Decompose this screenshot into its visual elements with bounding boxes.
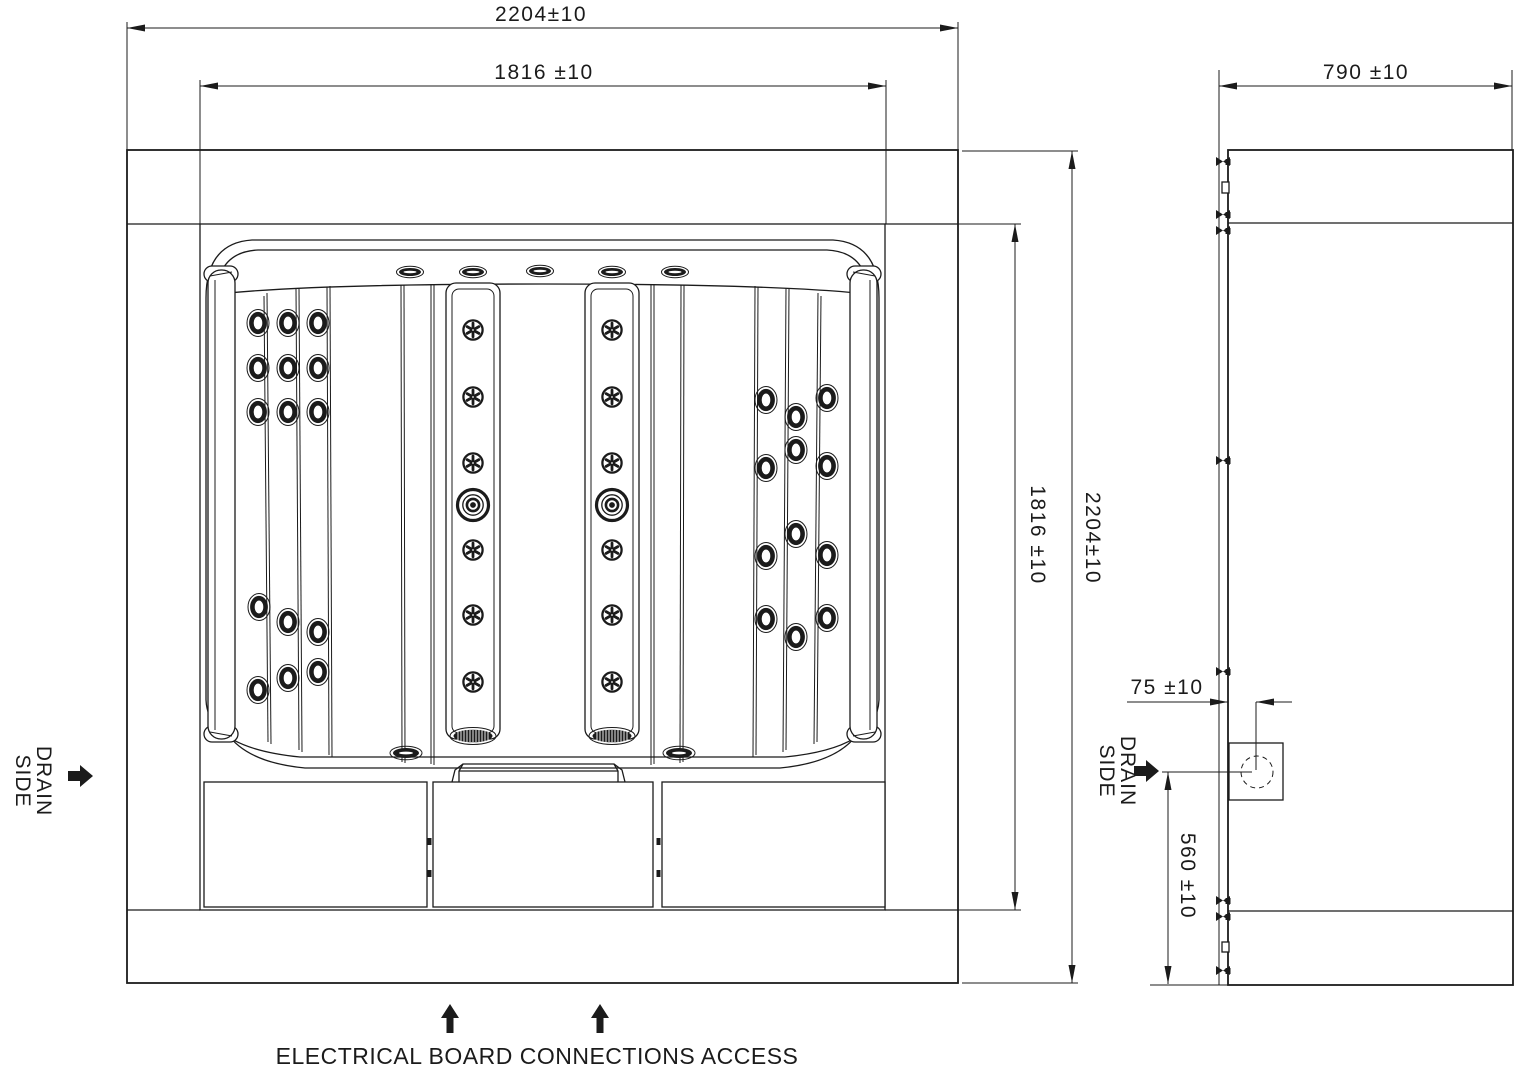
back-jet [602,320,621,339]
dim-inner-width: 1816 ±10 [200,61,886,224]
base-handle-recess [452,764,625,782]
skirt-panel-left [204,782,427,907]
tub-wall-seams-left [264,284,434,765]
side-jets-left [247,310,329,704]
back-jet [602,453,621,472]
dim-depth-label: 790 ±10 [1323,61,1409,84]
back-jet-strip-right [585,283,639,739]
rim-jets [397,265,689,278]
dim-drain-height-label: 560 ±10 [1176,833,1199,919]
side-jets-right [755,385,838,651]
front-drain-side-line2: SIDE [11,754,34,807]
lumbar-jet [597,490,628,521]
front-drain-side-label: DRAIN SIDE [11,746,93,816]
back-jet [463,672,482,691]
rim-jet [397,266,424,278]
rim-jet [460,266,487,278]
floor-fittings [390,728,695,760]
back-jet [463,320,482,339]
floor-suction [450,728,496,745]
back-jet [463,453,482,472]
floor-suction [589,728,635,745]
tub-bench [206,700,879,768]
dim-overall-height-label: 2204±10 [1081,492,1104,584]
lumbar-jet [458,490,489,521]
grab-bar-left [204,266,238,742]
side-drain-side-line2: SIDE [1095,744,1118,797]
rim-jet [527,265,554,277]
dim-drain-height: 560 ±10 [1150,772,1252,985]
side-body [1228,150,1513,985]
footer-note-label: ELECTRICAL BOARD CONNECTIONS ACCESS [276,1043,799,1069]
back-jet [602,387,621,406]
footer-note: ELECTRICAL BOARD CONNECTIONS ACCESS [276,1004,799,1069]
rim-jet [599,266,626,278]
back-jet [463,605,482,624]
floor-jet [663,746,695,760]
front-drain-arrow-icon [68,765,93,787]
back-jet [463,387,482,406]
rim-jet [662,266,689,278]
access-arrow-icon [441,1004,459,1033]
grab-bar-right [847,266,881,742]
side-view: DRAIN SIDE [1095,70,1513,985]
skirt-panels [204,782,885,907]
access-arrow-icon [591,1004,609,1033]
dim-inner-height-label: 1816 ±10 [1026,485,1049,584]
side-dimensions: 790 ±10 75 ±10 560 ±10 [1127,61,1512,985]
technical-drawing-page: DRAIN SIDE 2204±10 1816 ±10 [0,0,1524,1081]
dim-overall-width-label: 2204±10 [495,3,587,26]
skirt-panel-right [662,782,885,907]
back-jet [602,605,621,624]
front-view: DRAIN SIDE [11,150,958,983]
back-jet-strip-left [446,283,500,739]
dim-inner-width-label: 1816 ±10 [494,61,593,84]
floor-jet [390,746,422,760]
dim-depth: 790 ±10 [1219,61,1512,150]
dim-drain-offset-label: 75 ±10 [1130,676,1203,699]
front-drain-side-line1: DRAIN [32,746,55,816]
back-jet [602,672,621,691]
back-jet [463,540,482,559]
skirt-panel-center [433,782,653,907]
back-jet [602,540,621,559]
side-drain-side-label: DRAIN SIDE [1095,736,1159,806]
dim-inner-height: 1816 ±10 [890,224,1049,910]
